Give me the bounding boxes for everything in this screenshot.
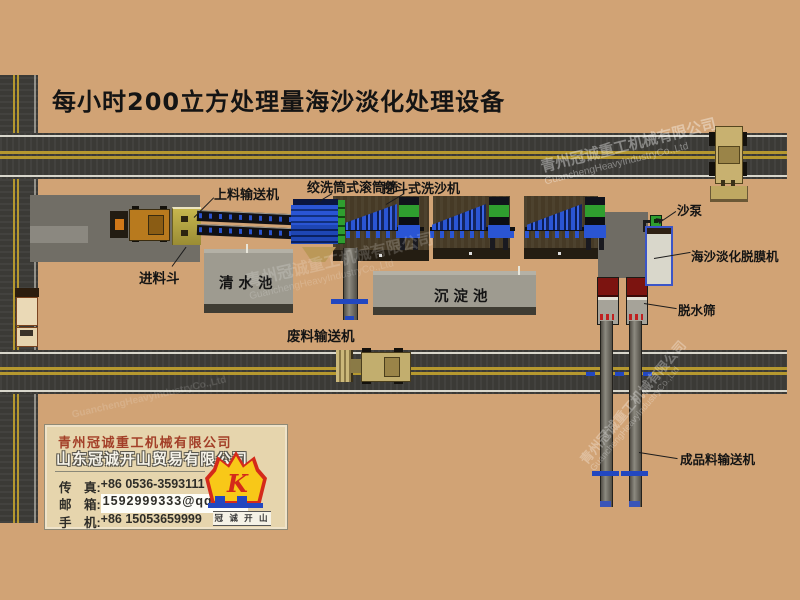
machine-drum-upper bbox=[291, 205, 338, 225]
hopper-gate bbox=[181, 230, 188, 236]
platform-marker bbox=[469, 252, 472, 255]
machine-drum-lower bbox=[291, 225, 338, 244]
screen-white-band bbox=[598, 297, 618, 300]
tower-band bbox=[585, 217, 605, 225]
desalination-label: 海沙淡化脱膜机 bbox=[691, 246, 779, 265]
box-top-band bbox=[647, 228, 671, 234]
loader-cab bbox=[718, 146, 740, 164]
conveyor-tip bbox=[600, 501, 611, 507]
pool-edge bbox=[204, 249, 293, 253]
dewatering-label: 脱水筛 bbox=[678, 300, 716, 319]
tower-cap bbox=[585, 197, 605, 205]
platform-marker bbox=[379, 254, 382, 257]
leader-product-conveyor bbox=[639, 452, 678, 459]
tower-body-blue bbox=[488, 225, 510, 238]
logo-caption: 冠 诚 开 山 bbox=[213, 511, 271, 526]
waste-conveyor-label: 废料输送机 bbox=[287, 325, 355, 345]
tower-cap bbox=[489, 197, 509, 205]
screen-white-band bbox=[627, 297, 647, 300]
platform-marker bbox=[558, 252, 561, 255]
company-info-card: 青州冠诚重工机械有限公司 山东冠诚开山贸易有限公司 传 真: +86 0536-… bbox=[44, 424, 288, 530]
loader-arm bbox=[351, 359, 361, 373]
truck-roof bbox=[15, 288, 39, 297]
mobile-value: +86 15053659999 bbox=[101, 512, 202, 531]
conveyor-support bbox=[621, 471, 648, 476]
clear-water-pool-label: 清水池 bbox=[219, 272, 278, 293]
pool-shadow bbox=[373, 307, 536, 315]
logo-base-block bbox=[215, 496, 225, 504]
loader-cab bbox=[148, 215, 164, 235]
product-conveyor-belt bbox=[600, 321, 613, 507]
tower-band bbox=[489, 217, 509, 225]
wheel-loader bbox=[707, 122, 749, 200]
page-title: 每小时200立方处理量海沙淡化处理设备 bbox=[52, 82, 505, 117]
sedimentation-pool-label: 沉淀池 bbox=[434, 285, 493, 306]
tower-cap bbox=[399, 197, 419, 205]
tower-band bbox=[399, 217, 419, 225]
washer-drive-tower bbox=[487, 197, 511, 251]
mobile-row: 手 机: +86 15053659999 bbox=[59, 512, 202, 531]
dewatering-screen-unit bbox=[597, 277, 619, 325]
screen-red-top bbox=[627, 278, 647, 297]
screen-indicator-dots bbox=[600, 314, 614, 320]
loader-bucket-glow bbox=[115, 219, 124, 230]
tower-body-blue bbox=[584, 225, 606, 238]
truck-cargo-box bbox=[16, 297, 38, 326]
truck-windshield bbox=[20, 330, 33, 336]
loader-bucket bbox=[710, 186, 748, 202]
email-label: 邮 箱: bbox=[59, 494, 101, 513]
tower-legs bbox=[400, 238, 418, 250]
tower-body-blue bbox=[398, 225, 420, 238]
machine-motor-green bbox=[338, 200, 345, 244]
leader-dewatering bbox=[644, 303, 677, 309]
pool-shadow bbox=[204, 304, 293, 313]
product-conveyor-belt bbox=[629, 321, 642, 507]
road-edge-line bbox=[0, 135, 787, 137]
sand-pump-label: 沙泵 bbox=[677, 200, 702, 219]
conveyor-support bbox=[592, 471, 619, 476]
wheel-loader bbox=[110, 205, 172, 243]
washer-drive-tower bbox=[583, 197, 607, 251]
feed-hopper-label: 进料斗 bbox=[139, 267, 180, 287]
product-conveyor-label: 成品料输送机 bbox=[680, 449, 755, 468]
drum-screen-machine bbox=[291, 196, 345, 250]
screen-indicator-dots bbox=[629, 314, 643, 320]
wheel-loader bbox=[336, 347, 414, 385]
loader-cab bbox=[384, 357, 400, 377]
tower-legs bbox=[586, 238, 604, 250]
pool-edge bbox=[373, 271, 536, 275]
road-center-line bbox=[0, 156, 787, 159]
conveyor-rollers bbox=[199, 227, 295, 236]
road-edge-line bbox=[0, 390, 787, 392]
conveyor-support bbox=[331, 299, 368, 304]
road-center-line bbox=[0, 151, 787, 154]
mobile-label: 手 机: bbox=[59, 512, 101, 531]
pool-drain-mark bbox=[246, 244, 248, 253]
tower-legs bbox=[490, 238, 508, 250]
pool-drain-mark bbox=[518, 266, 520, 275]
logo-glyph: K bbox=[227, 469, 248, 498]
conveyor-rollers bbox=[199, 213, 295, 222]
illustration-canvas: 每小时200立方处理量海沙淡化处理设备 bbox=[0, 0, 800, 600]
screen-red-top bbox=[598, 278, 618, 297]
bucket-washer-label: 挖斗式洗沙机 bbox=[382, 178, 460, 197]
road-crossing-mark bbox=[586, 372, 595, 376]
conveyor-tip bbox=[345, 316, 354, 320]
washer-drive-tower bbox=[397, 197, 421, 251]
hopper-gate bbox=[181, 216, 188, 222]
card-divider bbox=[55, 471, 205, 472]
leader-sand-pump bbox=[661, 211, 676, 222]
conveyor-tip bbox=[629, 501, 640, 507]
road-crossing-mark bbox=[643, 372, 652, 376]
feed-conveyor-belt bbox=[197, 210, 297, 225]
road-horizontal-top bbox=[0, 133, 787, 179]
feed-conveyor-belt bbox=[197, 224, 297, 239]
waste-conveyor-belt bbox=[343, 248, 358, 320]
dump-truck bbox=[15, 288, 39, 348]
road-crossing-mark bbox=[615, 372, 624, 376]
platform-access-strip bbox=[30, 226, 88, 243]
feed-conveyor-label: 上料输送机 bbox=[214, 184, 279, 203]
